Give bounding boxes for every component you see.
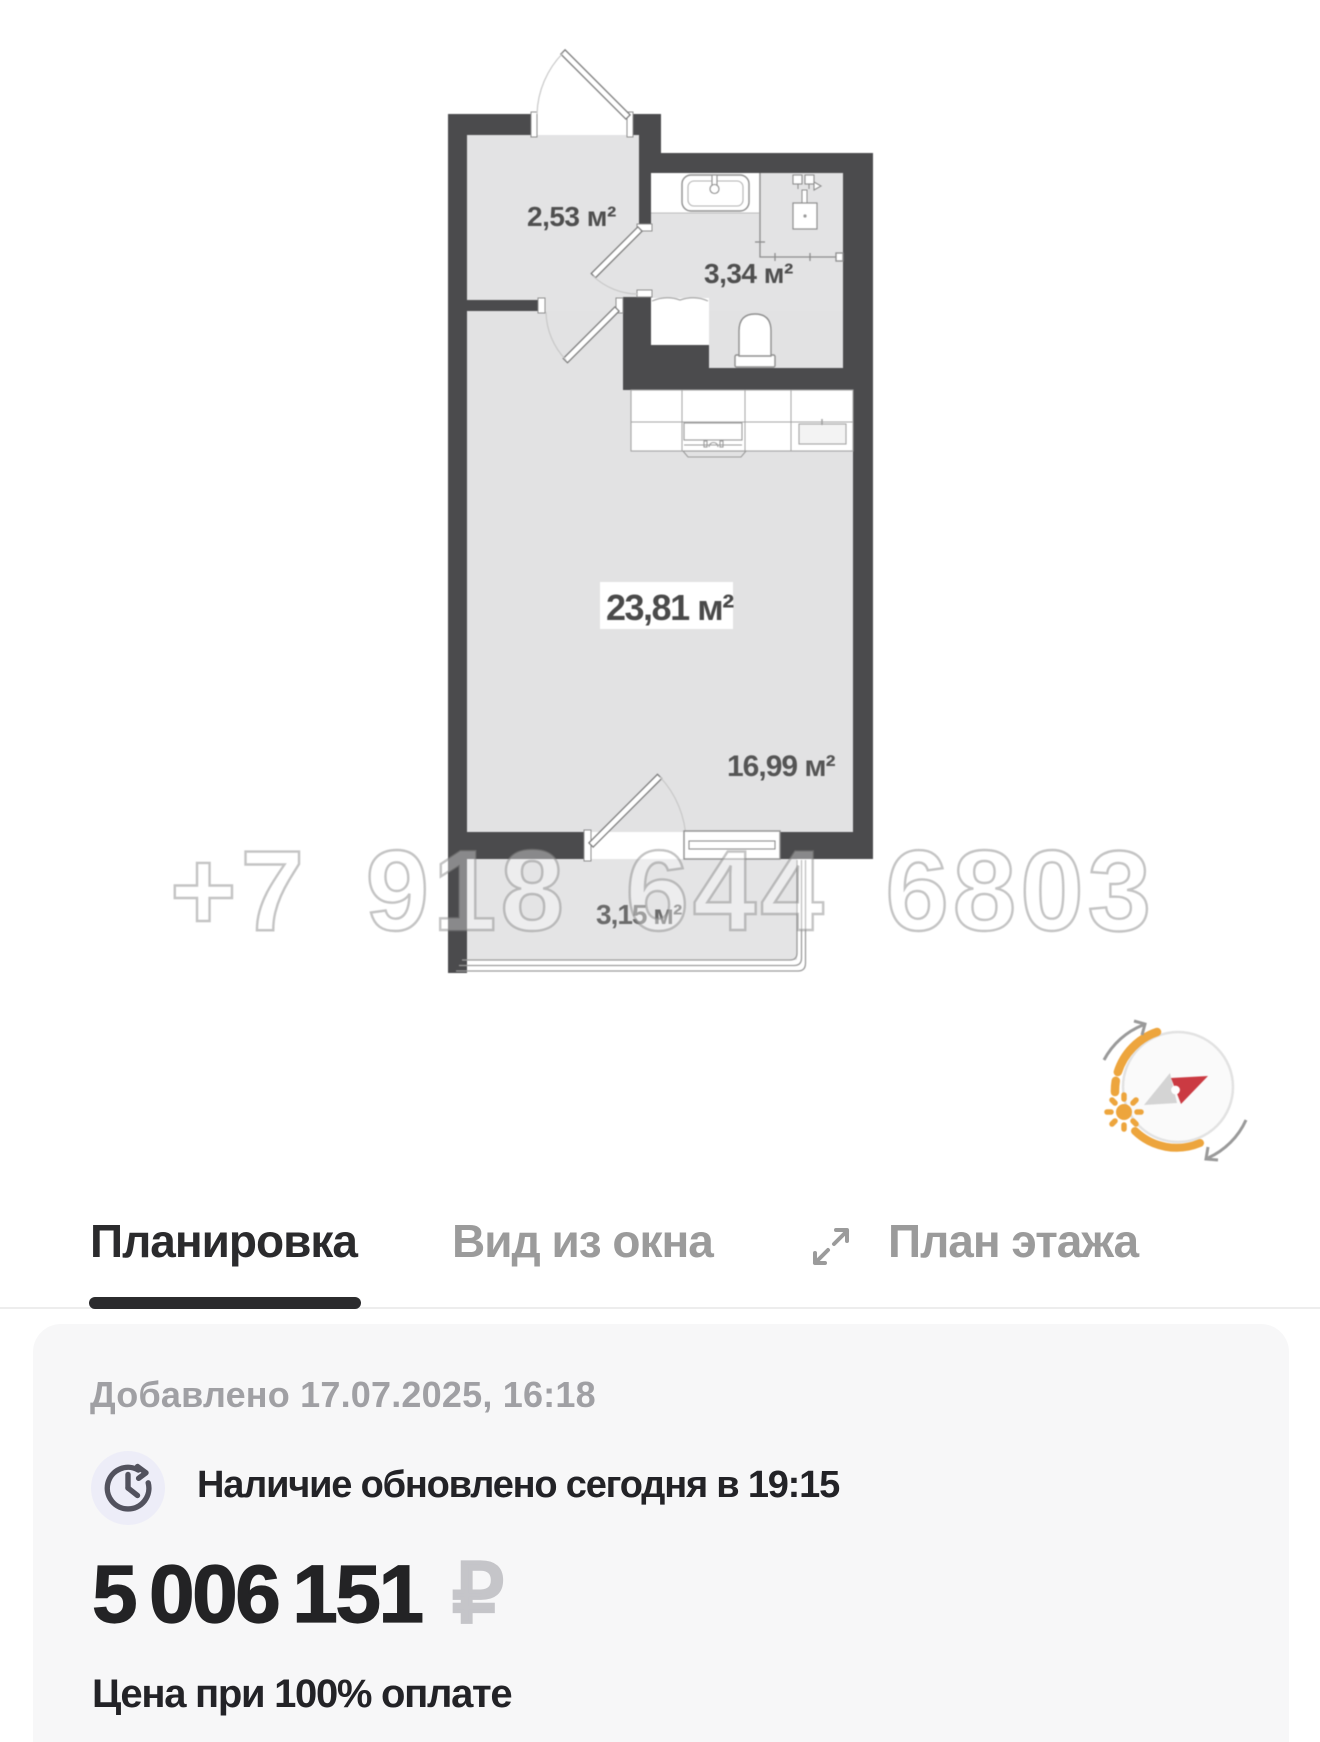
svg-text:23,81 м²: 23,81 м² [606, 587, 734, 628]
svg-text:16,99 м²: 16,99 м² [727, 750, 836, 783]
svg-text:2,53 м²: 2,53 м² [527, 201, 616, 232]
svg-text:3,34 м²: 3,34 м² [704, 258, 793, 289]
svg-text:+7 918 644 6803: +7 918 644 6803 [170, 828, 1155, 955]
